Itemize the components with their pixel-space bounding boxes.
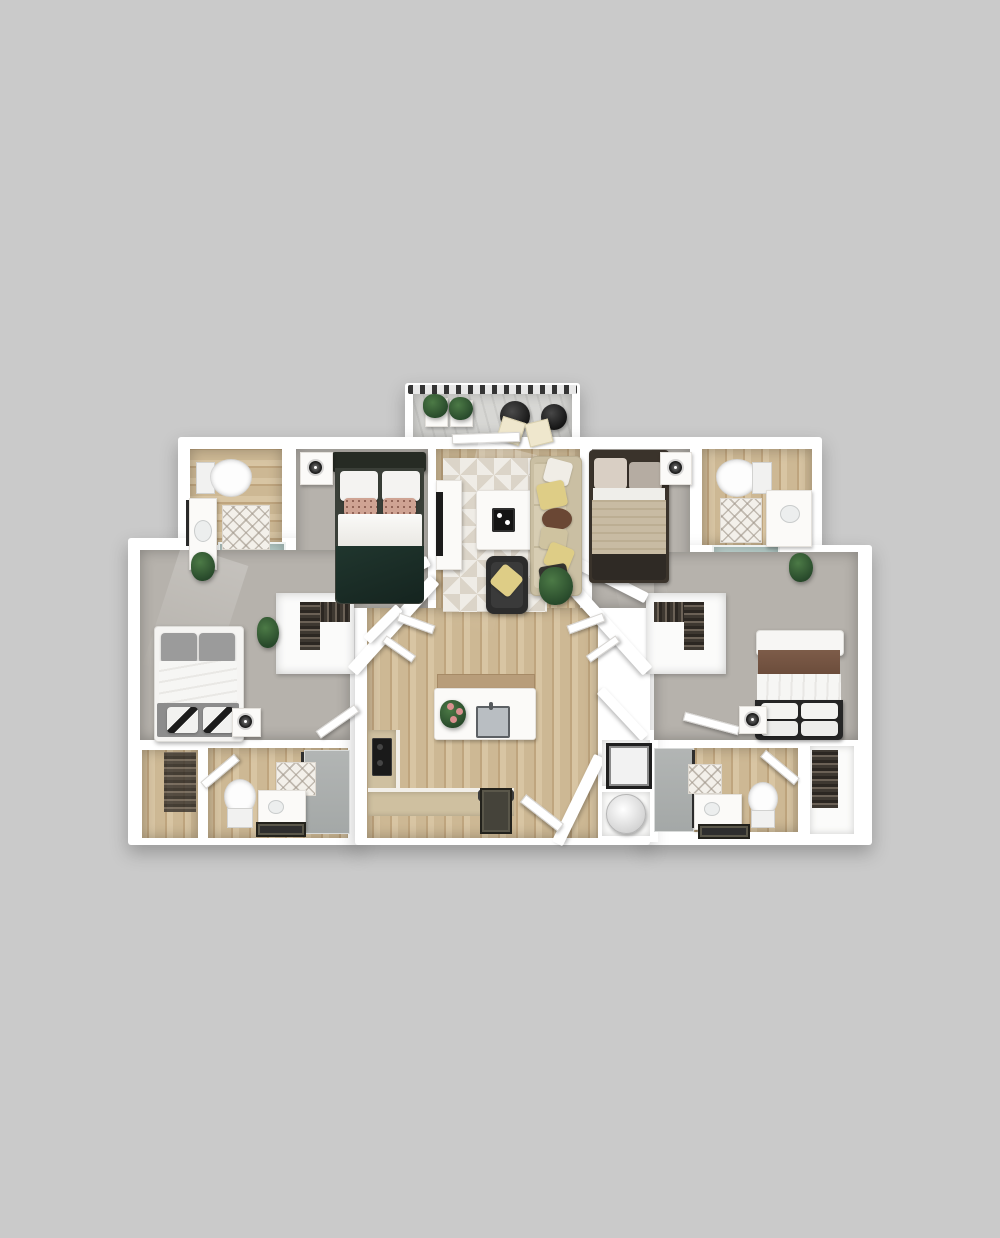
- hall-plant-icon: [257, 617, 279, 648]
- bed-duvet-tan: [592, 500, 666, 556]
- bed-foot-dark: [592, 554, 666, 580]
- sink-basin: [704, 802, 720, 816]
- bed-pillow-white: [801, 703, 838, 719]
- bath-mat-diamond: [222, 505, 270, 550]
- bed-pillow-gray: [199, 633, 235, 663]
- bedroom-right-plant-icon: [789, 553, 813, 582]
- balcony-railing: [408, 385, 577, 394]
- toilet-tank: [227, 808, 253, 828]
- closet-shelving: [164, 752, 196, 812]
- serving-tray: [492, 508, 515, 532]
- flower-blooms: [447, 703, 454, 710]
- water-heater: [606, 794, 646, 834]
- sink-basin: [268, 800, 284, 814]
- bed-duvet-white: [159, 661, 237, 705]
- table-lamp: [239, 715, 252, 728]
- bed-pillow: [340, 471, 378, 501]
- bed-pillow-gray: [629, 462, 662, 490]
- living-room-plant-icon: [539, 567, 573, 605]
- bath-mat-diamond: [720, 498, 762, 543]
- entry-door-mat: [480, 788, 512, 834]
- sink-basin: [780, 505, 800, 523]
- patterned-pillow: [167, 707, 198, 733]
- closet-hanging-clothes: [812, 750, 838, 808]
- floor-plan-canvas: [0, 0, 1000, 1238]
- dark-bath-mat: [698, 824, 750, 839]
- bed-sheet-fold: [338, 514, 422, 548]
- tv: [436, 492, 443, 556]
- table-lamp: [309, 461, 322, 474]
- table-lamp: [669, 461, 682, 474]
- tray-cup: [505, 520, 510, 525]
- bed-pillow: [382, 471, 420, 501]
- cooktop: [372, 738, 392, 776]
- closet-right-hanging-clothes: [684, 602, 704, 650]
- bed-throw-brown: [758, 650, 840, 677]
- bed-duvet-green: [336, 546, 424, 603]
- cooktop-burner: [377, 744, 383, 750]
- bed-pillow-gray: [161, 633, 197, 663]
- dark-bath-mat: [256, 822, 306, 837]
- shower-tile-wall: [688, 764, 722, 794]
- toilet-tank: [751, 810, 775, 828]
- bed-pillow-cream: [594, 458, 627, 489]
- closet-left-hanging-clothes: [300, 602, 320, 650]
- island-sink: [476, 706, 510, 738]
- table-lamp: [746, 713, 759, 726]
- patterned-pillow: [203, 707, 234, 733]
- balcony-plant-icon: [423, 394, 448, 418]
- bed-pillow-white: [801, 721, 838, 736]
- sink-basin: [194, 520, 212, 542]
- bedroom-left-plant-icon: [191, 552, 215, 581]
- stacked-washer-dryer: [606, 743, 652, 789]
- sink-faucet: [489, 702, 493, 710]
- balcony-plant-icon: [449, 397, 473, 420]
- tray-cup: [497, 513, 502, 518]
